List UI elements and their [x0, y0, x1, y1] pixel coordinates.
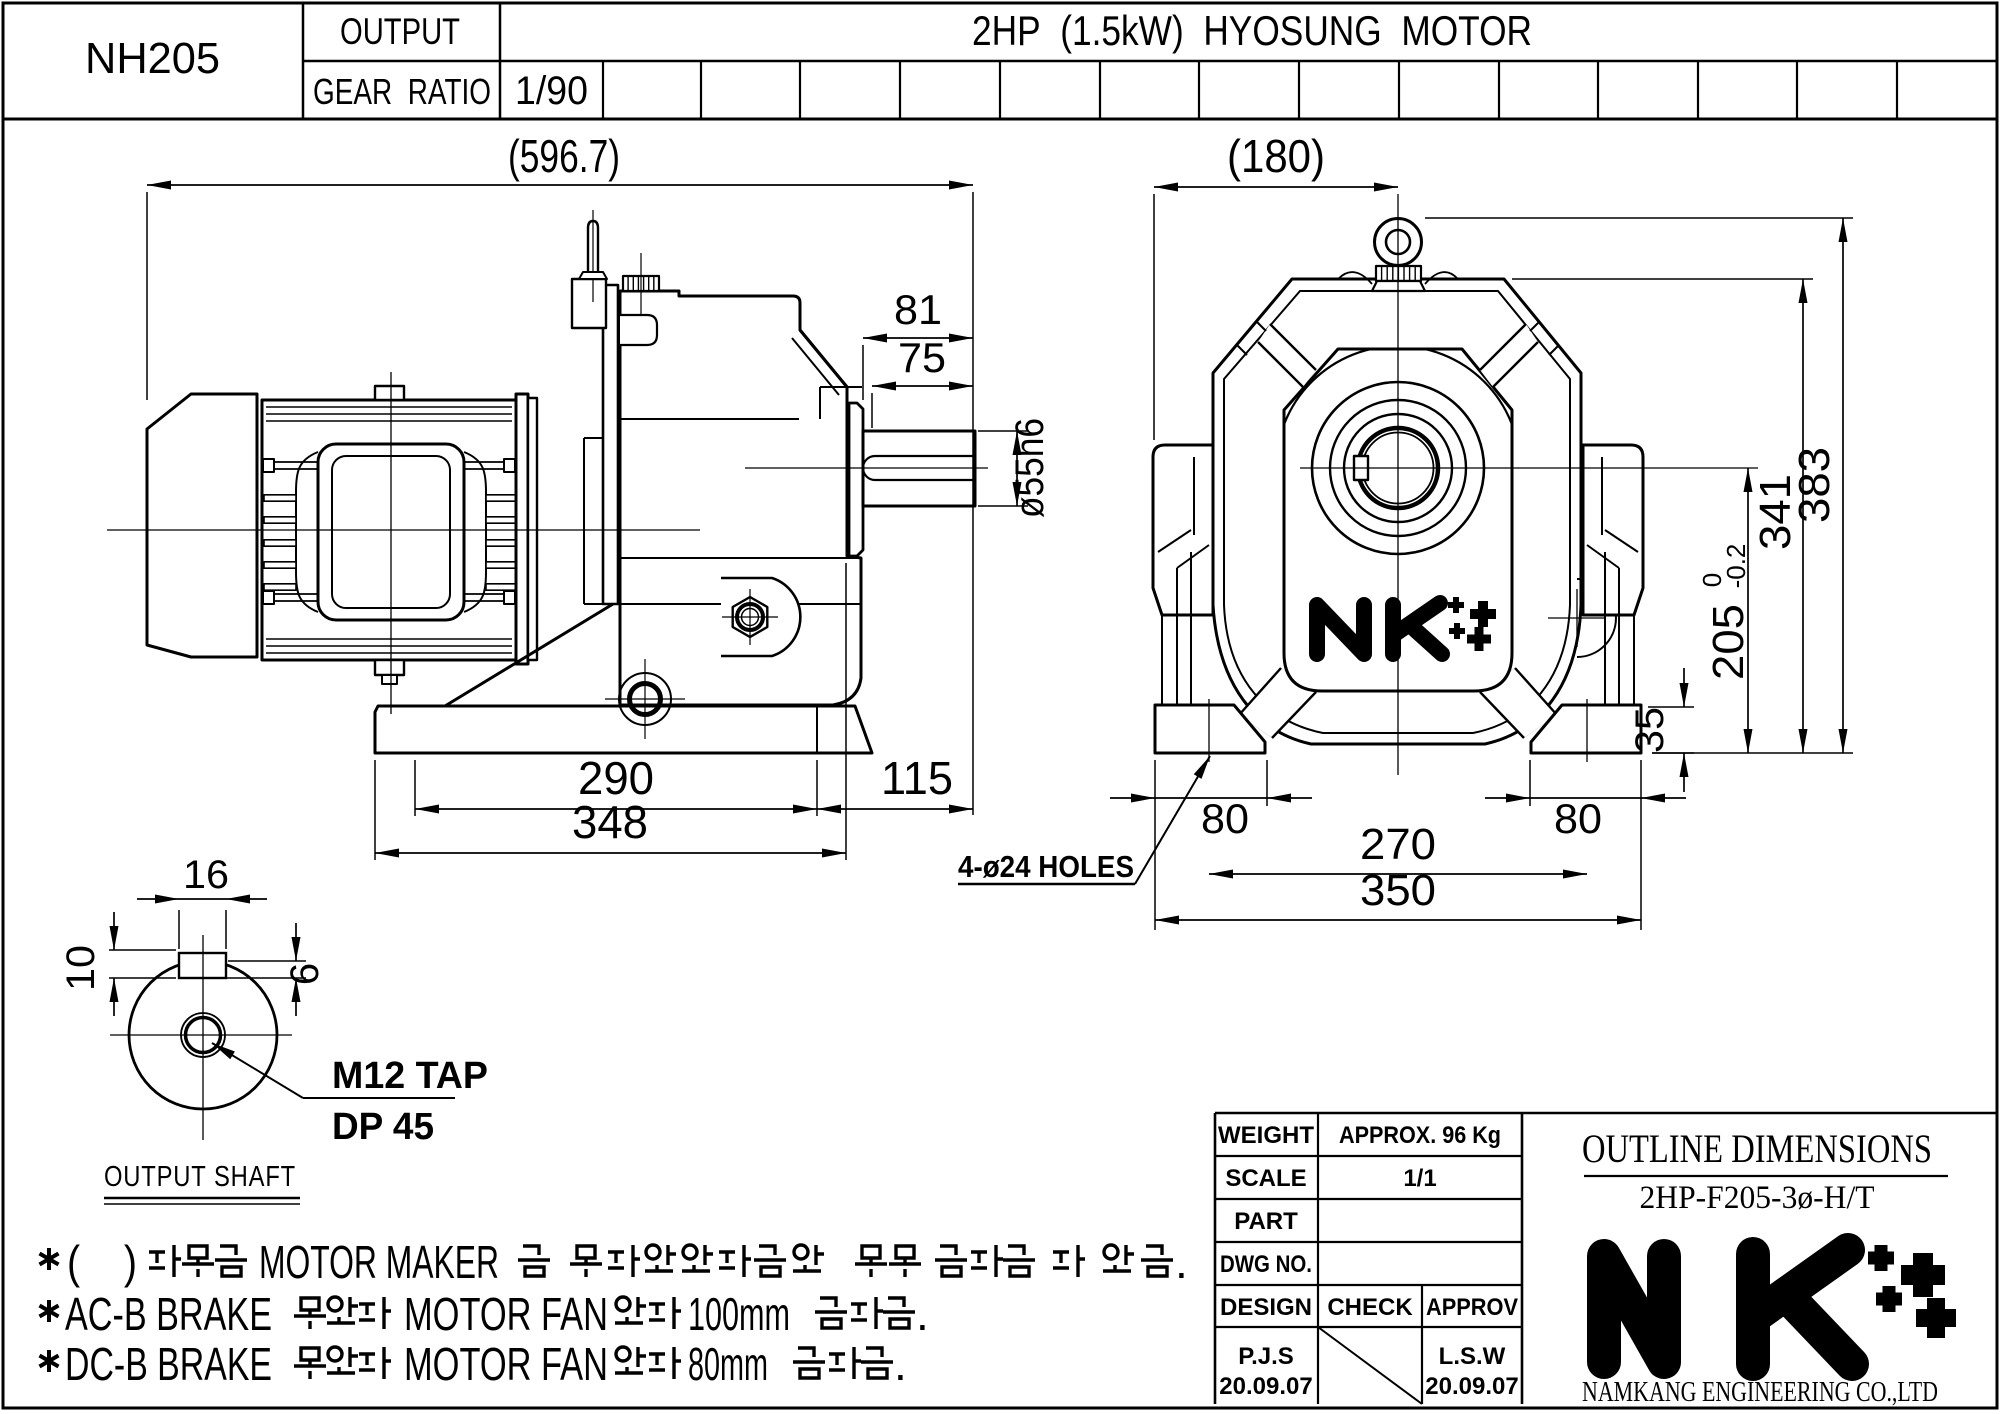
svg-text:100mm: 100mm [688, 1288, 790, 1340]
svg-text:80: 80 [1554, 795, 1602, 842]
svg-text:2HP-F205-3ø-H/T: 2HP-F205-3ø-H/T [1640, 1180, 1875, 1216]
svg-text:(596.7): (596.7) [508, 130, 620, 182]
svg-text:4-ø24 HOLES: 4-ø24 HOLES [958, 849, 1134, 884]
svg-text:6: 6 [283, 963, 327, 985]
svg-text:80mm: 80mm [688, 1338, 768, 1390]
svg-text:80: 80 [1201, 795, 1249, 842]
svg-text:DP 45: DP 45 [332, 1106, 434, 1148]
svg-text:.: . [1175, 1236, 1188, 1288]
svg-text:81: 81 [894, 286, 942, 333]
svg-text:ø55h6: ø55h6 [1008, 418, 1052, 518]
svg-text:350: 350 [1360, 866, 1436, 915]
svg-text:115: 115 [881, 752, 953, 804]
svg-text:OUTPUT SHAFT: OUTPUT SHAFT [104, 1161, 296, 1193]
svg-text:1/1: 1/1 [1403, 1165, 1436, 1192]
svg-text:L.S.W: L.S.W [1439, 1343, 1506, 1370]
svg-text:APPROX. 96 Kg: APPROX. 96 Kg [1339, 1122, 1501, 1149]
svg-text:PART: PART [1234, 1208, 1298, 1235]
svg-text:DC-B BRAKE: DC-B BRAKE [65, 1338, 272, 1390]
svg-text:DWG NO.: DWG NO. [1220, 1251, 1312, 1278]
svg-text:35: 35 [1628, 707, 1672, 753]
svg-text:(180): (180) [1227, 130, 1325, 182]
svg-text:205: 205 [1704, 604, 1753, 680]
svg-text:16: 16 [183, 853, 229, 897]
svg-text:75: 75 [898, 334, 946, 381]
svg-text:NAMKANG ENGINEERING CO.,LTD: NAMKANG ENGINEERING CO.,LTD [1582, 1376, 1938, 1408]
svg-text:NH205: NH205 [85, 34, 220, 83]
svg-text:SCALE: SCALE [1225, 1165, 1306, 1192]
svg-text:MOTOR FAN: MOTOR FAN [404, 1288, 608, 1340]
svg-text:341: 341 [1751, 474, 1800, 550]
svg-text:.: . [916, 1288, 929, 1340]
svg-text:( ): ( ) [67, 1236, 137, 1288]
svg-text:AC-B BRAKE: AC-B BRAKE [65, 1288, 272, 1340]
svg-text:-0.2: -0.2 [1721, 544, 1751, 589]
svg-text:270: 270 [1360, 820, 1436, 869]
svg-text:MOTOR MAKER: MOTOR MAKER [259, 1236, 499, 1288]
svg-text:GEAR RATIO: GEAR RATIO [313, 71, 491, 112]
svg-text:DESIGN: DESIGN [1220, 1294, 1312, 1321]
svg-text:OUTPUT: OUTPUT [340, 11, 460, 52]
svg-text:348: 348 [572, 796, 648, 848]
svg-text:20.09.07: 20.09.07 [1219, 1373, 1312, 1400]
svg-text:20.09.07: 20.09.07 [1425, 1373, 1518, 1400]
svg-text:2HP (1.5kW) HYOSUNG MOTOR: 2HP (1.5kW) HYOSUNG MOTOR [972, 7, 1532, 54]
svg-text:OUTLINE DIMENSIONS: OUTLINE DIMENSIONS [1582, 1126, 1932, 1171]
svg-text:APPROV: APPROV [1426, 1294, 1518, 1321]
svg-text:M12 TAP: M12 TAP [332, 1055, 488, 1097]
svg-text:WEIGHT: WEIGHT [1218, 1122, 1314, 1149]
svg-text:1/90: 1/90 [515, 69, 588, 113]
svg-text:P.J.S: P.J.S [1238, 1343, 1294, 1370]
svg-text:10: 10 [59, 945, 103, 991]
svg-text:CHECK: CHECK [1327, 1294, 1413, 1321]
svg-text:.: . [894, 1338, 907, 1390]
svg-text:MOTOR FAN: MOTOR FAN [404, 1338, 608, 1390]
